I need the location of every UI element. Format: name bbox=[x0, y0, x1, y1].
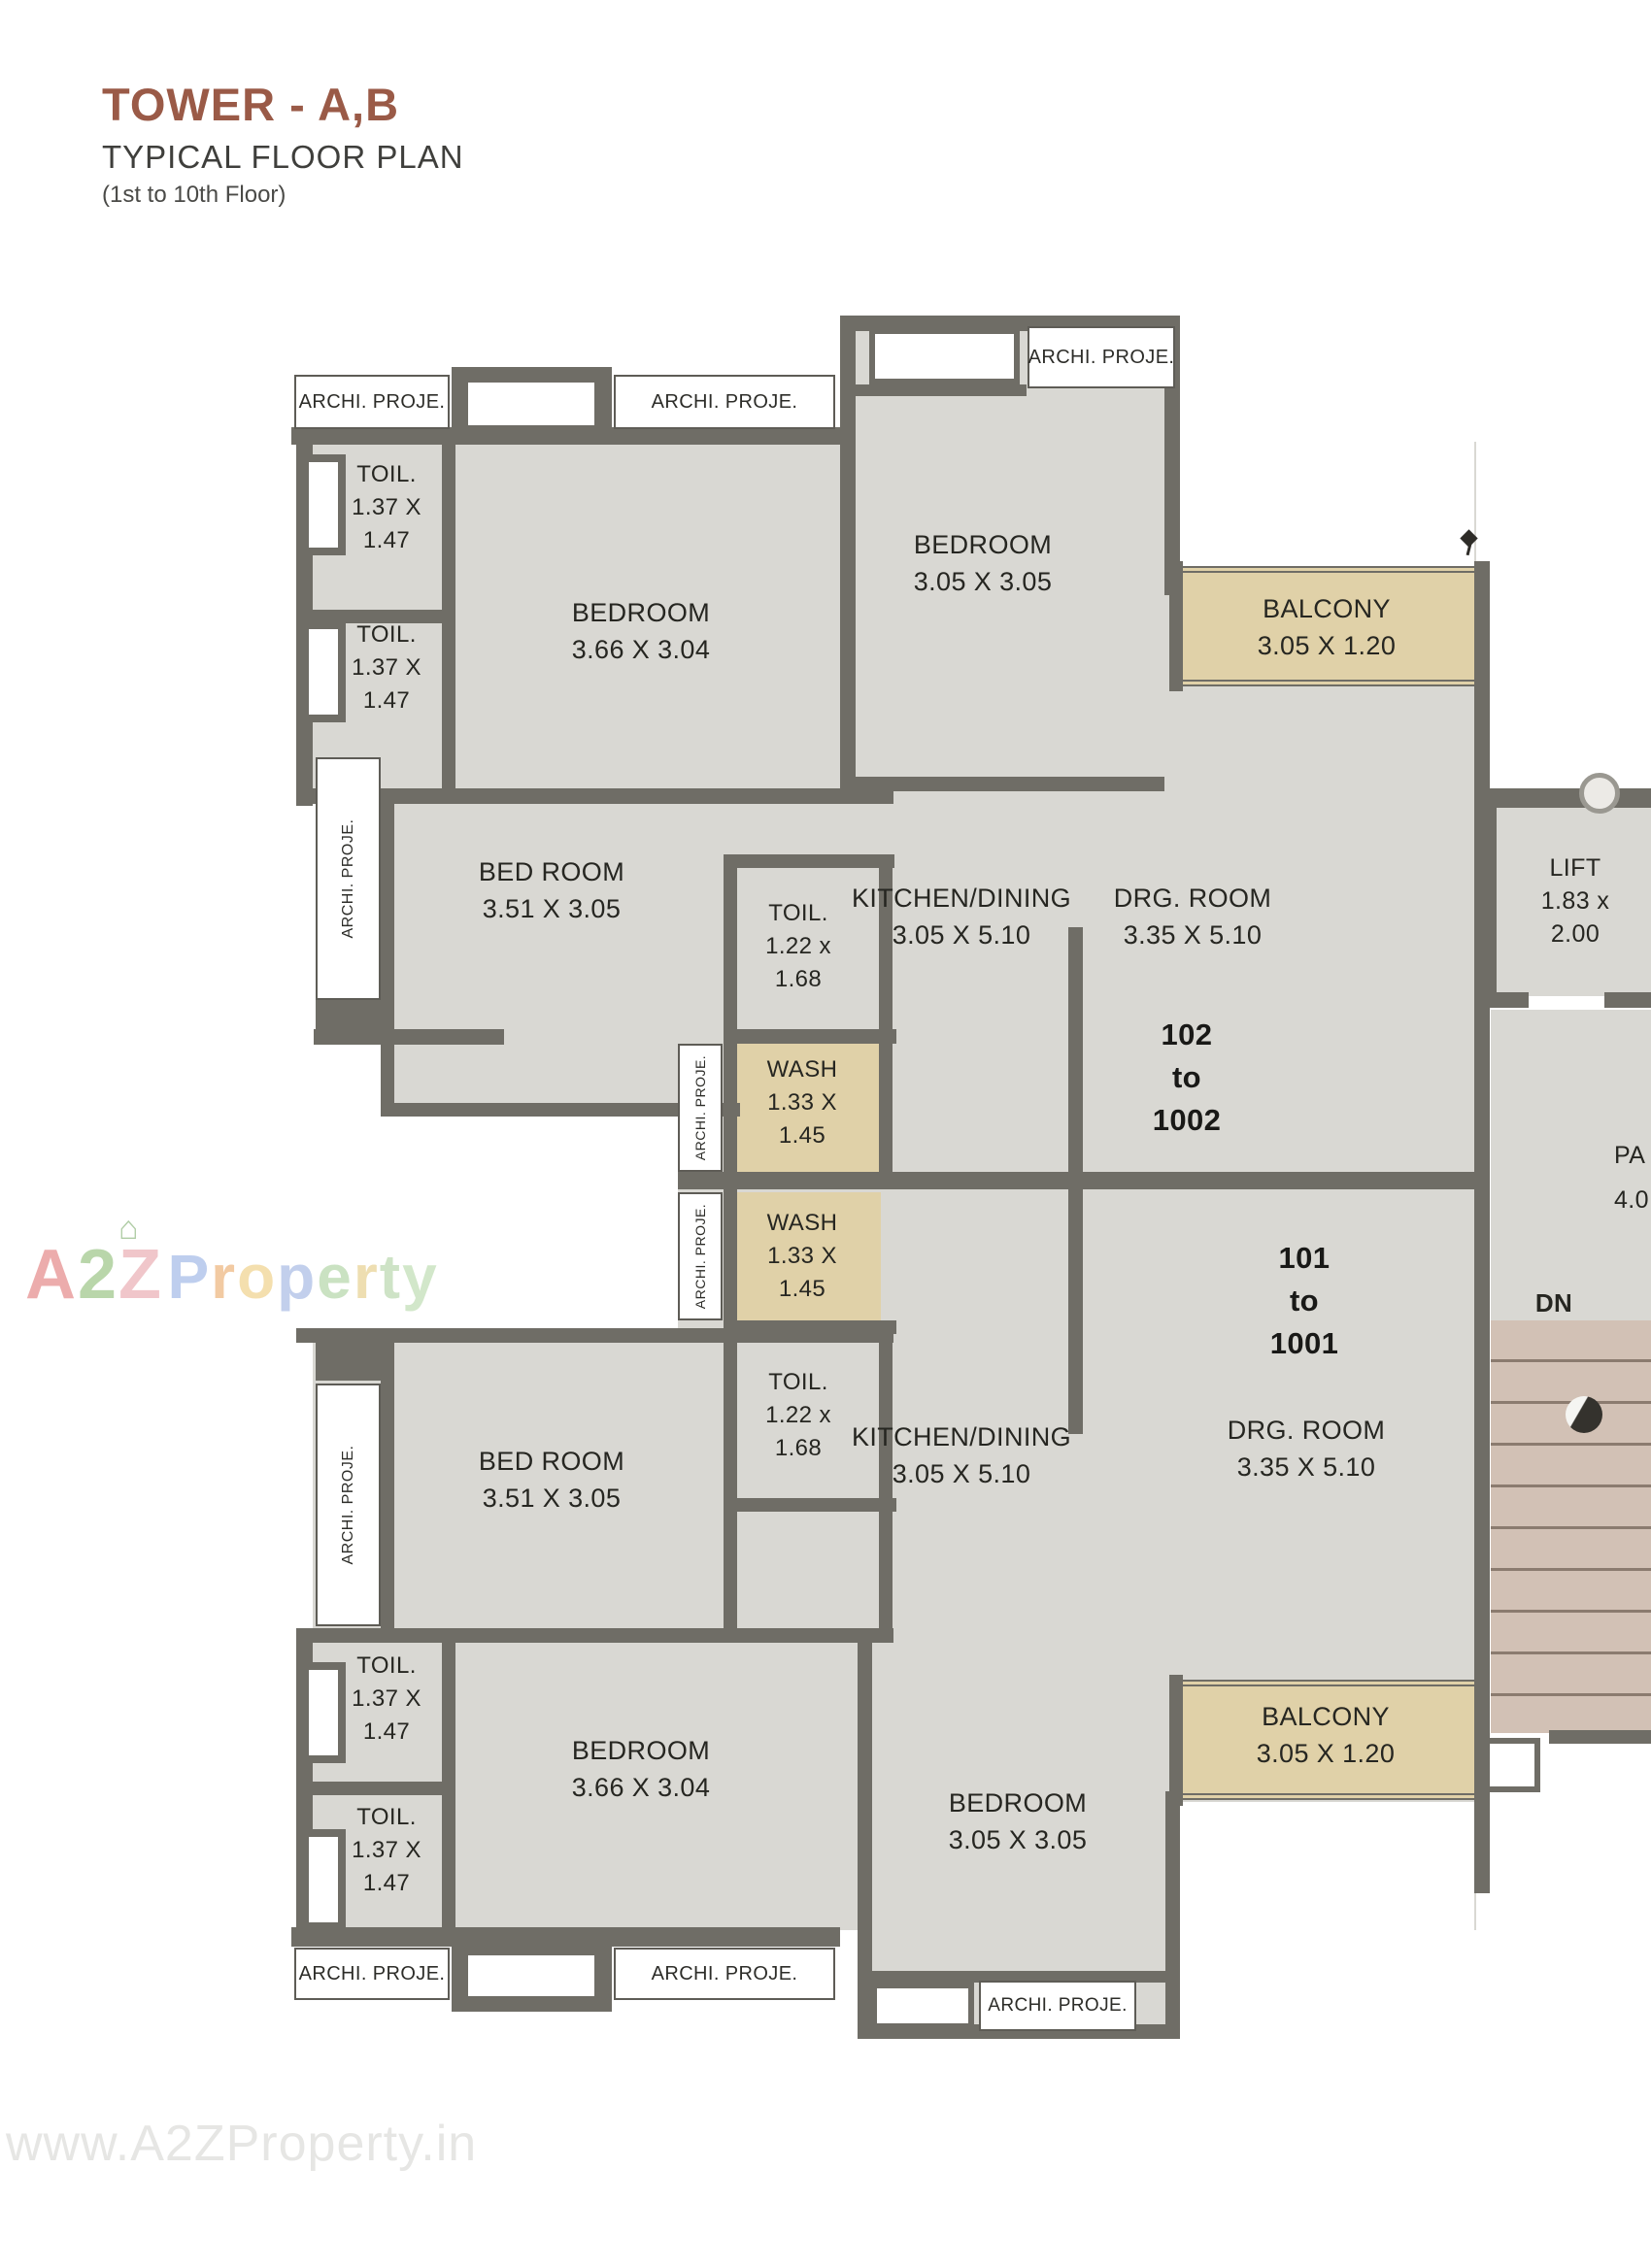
wall bbox=[381, 1328, 394, 1641]
wall bbox=[1474, 561, 1490, 1893]
watermark-letter: P bbox=[167, 1242, 211, 1312]
wall bbox=[296, 788, 893, 804]
lift-door-knob bbox=[1579, 773, 1620, 814]
archi-proje-text: ARCHI. PROJE. bbox=[692, 1055, 708, 1160]
watermark-letter: r bbox=[354, 1242, 380, 1312]
notch bbox=[1180, 1802, 1474, 1930]
wall bbox=[1484, 992, 1529, 1008]
room-label-bedroom: BEDROOM3.05 X 3.05 bbox=[914, 526, 1053, 600]
archi-proje-label-vertical: ARCHI. PROJE. bbox=[678, 1044, 723, 1172]
window-box bbox=[301, 454, 346, 555]
window-box bbox=[301, 1829, 346, 1930]
watermark-letter: y bbox=[402, 1242, 439, 1312]
room-label-toilet: TOIL.1.37 X1.47 bbox=[352, 1650, 421, 1749]
room-label-lift: LIFT1.83 x2.00 bbox=[1541, 851, 1610, 951]
window-box bbox=[468, 383, 594, 425]
room-label-bedroom: BEDROOM3.05 X 3.05 bbox=[949, 1784, 1088, 1858]
room-label-toilet: TOIL.1.37 X1.47 bbox=[352, 458, 421, 557]
floor-plan-page: TOWER - A,B TYPICAL FLOOR PLAN (1st to 1… bbox=[0, 0, 1651, 2268]
wall bbox=[724, 1189, 737, 1628]
archi-proje-label: ARCHI. PROJE. bbox=[614, 1948, 835, 2000]
window-box bbox=[301, 621, 346, 722]
wall bbox=[296, 1628, 893, 1643]
wall bbox=[1549, 1730, 1651, 1744]
page-subtitle: TYPICAL FLOOR PLAN bbox=[102, 139, 464, 176]
wall bbox=[724, 1498, 896, 1512]
wall bbox=[1169, 1675, 1183, 1806]
watermark-letter: e bbox=[317, 1242, 354, 1312]
room-label-kitchen: KITCHEN/DINING3.05 X 5.10 bbox=[852, 1418, 1071, 1492]
wall bbox=[1484, 788, 1651, 808]
room-label-bedroom: BED ROOM3.51 X 3.05 bbox=[479, 853, 624, 927]
archi-proje-text: ARCHI. PROJE. bbox=[340, 819, 357, 939]
wall bbox=[381, 804, 394, 1117]
watermark-letter: o bbox=[237, 1242, 277, 1312]
unit-number-lower: 101to1001 bbox=[1270, 1237, 1339, 1365]
archi-proje-label: ARCHI. PROJE. bbox=[979, 1981, 1136, 2031]
archi-proje-label: ARCHI. PROJE. bbox=[1028, 326, 1175, 388]
notch bbox=[1180, 442, 1474, 566]
wall bbox=[1604, 992, 1651, 1008]
floor-range: (1st to 10th Floor) bbox=[102, 182, 464, 209]
stair-column bbox=[1566, 1396, 1602, 1433]
archi-proje-text: ARCHI. PROJE. bbox=[988, 1995, 1128, 2017]
wall bbox=[1165, 1791, 1180, 2039]
watermark-letter: Z bbox=[118, 1236, 163, 1314]
wall bbox=[1068, 927, 1083, 1175]
house-icon: ⌂ bbox=[118, 1210, 139, 1248]
window-box bbox=[869, 328, 1020, 384]
room-label-drg: DRG. ROOM3.35 X 5.10 bbox=[1228, 1412, 1386, 1485]
watermark-letter: 2 bbox=[78, 1236, 118, 1314]
archi-proje-label-vertical: ARCHI. PROJE. bbox=[678, 1192, 723, 1320]
archi-proje-text: ARCHI. PROJE. bbox=[299, 1963, 446, 1985]
archi-proje-label-vertical: ARCHI. PROJE. bbox=[316, 1384, 381, 1626]
archi-proje-label: ARCHI. PROJE. bbox=[614, 375, 835, 429]
stairs-dn-label: DN bbox=[1535, 1286, 1572, 1319]
watermark-url: www.A2ZProperty.in bbox=[6, 2115, 477, 2173]
room-label-kitchen: KITCHEN/DINING3.05 X 5.10 bbox=[852, 880, 1071, 953]
notch bbox=[313, 1115, 678, 1172]
archi-proje-label: ARCHI. PROJE. bbox=[294, 1948, 450, 2000]
room-label-toilet: TOIL.1.22 x1.68 bbox=[765, 1366, 831, 1465]
window-box bbox=[301, 1662, 346, 1763]
wall bbox=[442, 442, 455, 788]
wall bbox=[296, 1782, 455, 1795]
room-label-bedroom: BEDROOM3.66 X 3.04 bbox=[572, 594, 711, 668]
watermark-letter: p bbox=[277, 1242, 317, 1312]
wall bbox=[724, 1320, 896, 1334]
room-label-passage: PA4.0 bbox=[1614, 1133, 1649, 1222]
room-label-toilet: TOIL.1.37 X1.47 bbox=[352, 618, 421, 717]
wall bbox=[856, 384, 1027, 396]
archi-proje-text: ARCHI. PROJE. bbox=[299, 391, 446, 414]
wall bbox=[724, 1029, 896, 1044]
staircase bbox=[1491, 1320, 1651, 1733]
window-box bbox=[468, 1955, 594, 1996]
room-label-drg: DRG. ROOM3.35 X 5.10 bbox=[1114, 880, 1272, 953]
archi-proje-text: ARCHI. PROJE. bbox=[652, 1963, 798, 1985]
room-label-bedroom: BED ROOM3.51 X 3.05 bbox=[479, 1443, 624, 1517]
room-label-bedroom: BEDROOM3.66 X 3.04 bbox=[572, 1732, 711, 1806]
archi-proje-label: ARCHI. PROJE. bbox=[294, 375, 450, 429]
wall bbox=[724, 854, 894, 868]
archi-proje-text: ARCHI. PROJE. bbox=[692, 1204, 708, 1309]
unit-number-upper: 102to1002 bbox=[1153, 1014, 1222, 1142]
window-box bbox=[871, 1983, 974, 2029]
archi-proje-text: ARCHI. PROJE. bbox=[340, 1446, 357, 1565]
archi-proje-text: ARCHI. PROJE. bbox=[1028, 347, 1175, 369]
watermark-property: Property bbox=[167, 1242, 438, 1312]
room-label-toilet: TOIL.1.22 x1.68 bbox=[765, 897, 831, 996]
room-label-toilet: TOIL.1.37 X1.47 bbox=[352, 1801, 421, 1900]
wall bbox=[316, 1000, 381, 1043]
room-label-balcony: BALCONY3.05 X 1.20 bbox=[1258, 590, 1397, 664]
wall bbox=[856, 777, 1164, 791]
room-label-balcony: BALCONY3.05 X 1.20 bbox=[1257, 1698, 1396, 1772]
wall bbox=[316, 1338, 381, 1381]
title-block: TOWER - A,B TYPICAL FLOOR PLAN (1st to 1… bbox=[102, 78, 464, 209]
archi-proje-label-vertical: ARCHI. PROJE. bbox=[316, 757, 381, 1000]
watermark-letter: A bbox=[25, 1236, 78, 1314]
wall bbox=[1169, 561, 1183, 691]
wall bbox=[678, 1172, 1476, 1189]
wall bbox=[858, 1628, 872, 2039]
wall bbox=[1484, 788, 1497, 1007]
room-label-wash: WASH1.33 X1.45 bbox=[767, 1053, 838, 1152]
watermark-letter: r bbox=[211, 1242, 237, 1312]
window-box bbox=[1484, 1738, 1540, 1792]
wall bbox=[840, 316, 856, 791]
room-label-wash: WASH1.33 X1.45 bbox=[767, 1207, 838, 1306]
page-title: TOWER - A,B bbox=[102, 78, 464, 131]
archi-proje-text: ARCHI. PROJE. bbox=[652, 391, 798, 414]
watermark-letter: t bbox=[380, 1242, 402, 1312]
wall bbox=[724, 854, 737, 1175]
watermark-brand: A2Z bbox=[25, 1236, 163, 1314]
wall bbox=[442, 1643, 455, 1930]
watermark-a2z-property: A2Z Property ⌂ bbox=[25, 1235, 439, 1315]
wall bbox=[1068, 1189, 1083, 1434]
